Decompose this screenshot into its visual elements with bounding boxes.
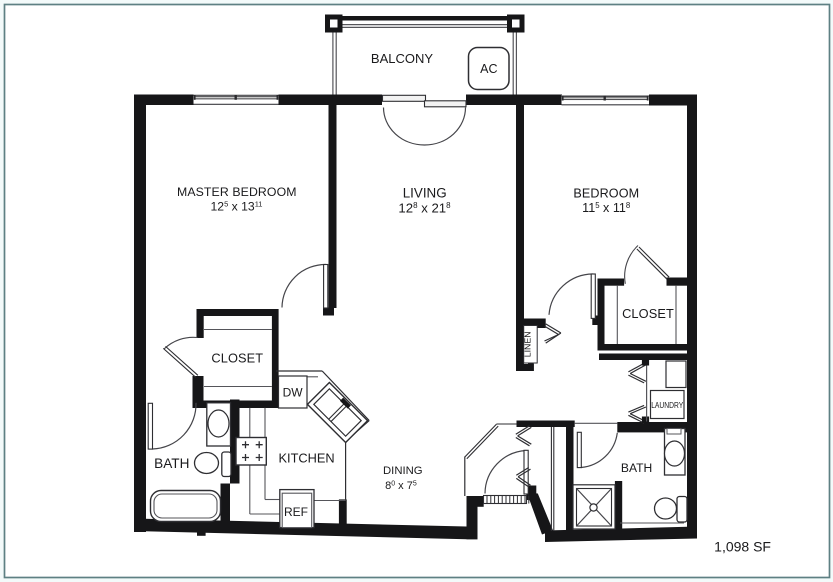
svg-text:AC: AC: [480, 62, 497, 76]
svg-text:LAUNDRY: LAUNDRY: [651, 400, 683, 410]
svg-text:115 x 118: 115 x 118: [582, 201, 630, 215]
svg-text:LINEN: LINEN: [524, 331, 533, 357]
svg-text:DINING: DINING: [383, 465, 423, 477]
svg-text:BALCONY: BALCONY: [371, 51, 433, 66]
svg-text:CLOSET: CLOSET: [622, 306, 674, 321]
svg-text:LIVING: LIVING: [403, 185, 447, 200]
svg-text:BEDROOM: BEDROOM: [573, 186, 639, 200]
svg-text:KITCHEN: KITCHEN: [279, 451, 335, 466]
svg-text:DW: DW: [283, 385, 304, 399]
svg-text:MASTER BEDROOM: MASTER BEDROOM: [177, 185, 297, 199]
svg-text:BATH: BATH: [621, 461, 652, 475]
svg-text:REF: REF: [284, 505, 308, 519]
svg-text:CLOSET: CLOSET: [211, 351, 263, 366]
svg-text:80 x 75: 80 x 75: [385, 480, 417, 492]
svg-text:1,098 SF: 1,098 SF: [714, 539, 771, 555]
svg-text:BATH: BATH: [154, 456, 189, 471]
svg-text:128 x 218: 128 x 218: [398, 200, 451, 215]
